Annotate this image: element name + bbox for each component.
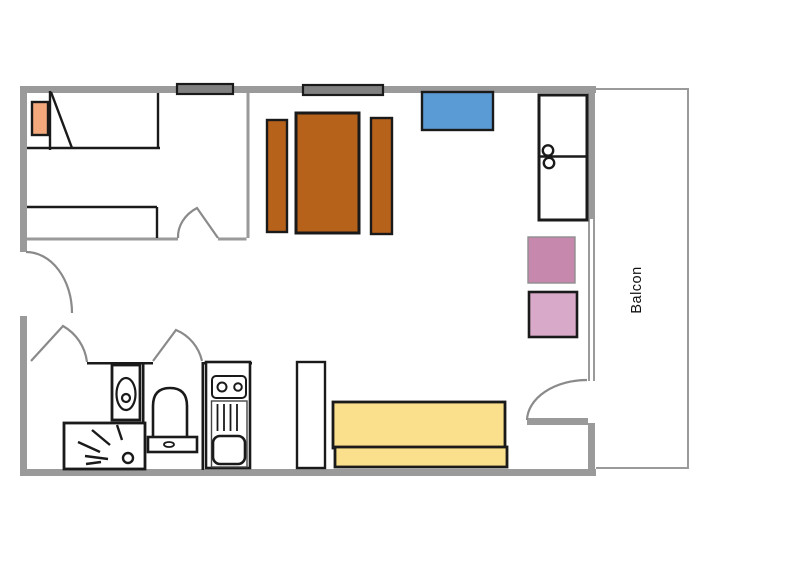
shower-drain xyxy=(123,453,133,463)
washbasin-drain xyxy=(122,394,130,402)
balcony-label: Balcon xyxy=(629,266,645,313)
bedroom-door-arc xyxy=(178,208,218,238)
pink-stool-light xyxy=(529,292,577,337)
bedroom-bottom-wall-right xyxy=(218,238,247,241)
tall-cupboard xyxy=(297,362,325,468)
wc-right-wall xyxy=(202,362,205,470)
bench-right xyxy=(371,118,392,234)
dining-table xyxy=(296,113,359,233)
bedroom-bottom-wall-left xyxy=(27,238,178,241)
dining-set xyxy=(267,113,392,234)
faucet-knob-right xyxy=(234,383,242,391)
fridge-handle-bottom xyxy=(544,158,554,168)
bed-pillow xyxy=(32,102,48,135)
pink-stool-dark xyxy=(528,237,575,283)
sofa xyxy=(333,402,507,467)
blue-sideboard xyxy=(422,92,493,130)
floor-plan: Balcon xyxy=(0,0,800,566)
bathroom-fixtures xyxy=(64,362,250,469)
entrance-door-arc xyxy=(26,252,72,313)
sofa-base xyxy=(335,447,507,467)
bed1-blanket-fold xyxy=(51,92,72,148)
faucet-knob-left xyxy=(218,383,227,392)
right-wall-lower xyxy=(588,423,595,476)
bedroom-window xyxy=(177,84,233,94)
bench-left xyxy=(267,120,287,232)
wc-door-arc xyxy=(153,330,202,361)
toilet-flush-button xyxy=(164,442,174,447)
balcony-door-arc xyxy=(527,380,587,420)
left-wall-lower xyxy=(20,316,27,476)
right-window-frame-outer xyxy=(588,219,590,381)
floor-plan-page: Balcon xyxy=(0,0,800,566)
bedroom-right-wall xyxy=(247,93,250,238)
living-window xyxy=(303,85,383,95)
right-window-frame-inner xyxy=(593,219,595,381)
balcony-door-leaf xyxy=(527,418,588,425)
sink-basin xyxy=(213,436,245,464)
fridge-handle-top xyxy=(543,145,553,155)
right-wall-upper xyxy=(588,86,595,219)
sofa-seat xyxy=(333,402,505,448)
bathroom-door-arc xyxy=(31,326,87,362)
left-wall-upper xyxy=(20,86,27,252)
fridge-cabinet xyxy=(539,95,587,220)
toilet-bowl xyxy=(153,388,187,439)
shower-tray xyxy=(64,423,145,469)
